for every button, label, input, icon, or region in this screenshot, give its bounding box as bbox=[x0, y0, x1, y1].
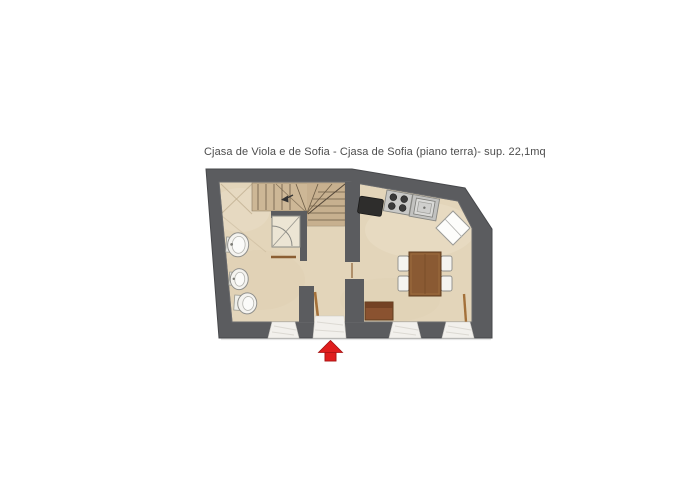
entrance-arrow-head bbox=[319, 341, 343, 353]
shower bbox=[272, 216, 300, 247]
dividing-wall-upper bbox=[345, 182, 360, 262]
kitchen-appliance bbox=[357, 196, 383, 217]
plan-shadow bbox=[221, 339, 491, 341]
dining-table bbox=[409, 252, 441, 296]
opening-room-right bbox=[442, 322, 474, 338]
opening-room-left bbox=[389, 322, 421, 338]
dividing-wall-lower bbox=[345, 279, 364, 322]
kitchen-sink bbox=[409, 195, 439, 221]
stove bbox=[383, 190, 412, 215]
hallway-wall-left bbox=[299, 286, 314, 322]
floor-plan-page: Cjasa de Viola e de Sofia - Cjasa de Sof… bbox=[0, 0, 700, 500]
opening-bathroom bbox=[268, 322, 299, 338]
bathroom-partition-wall bbox=[300, 218, 307, 261]
opening-entrance bbox=[313, 316, 346, 338]
floor-plan bbox=[0, 0, 700, 500]
bench bbox=[365, 302, 393, 320]
entrance-arrow-icon bbox=[319, 341, 343, 362]
